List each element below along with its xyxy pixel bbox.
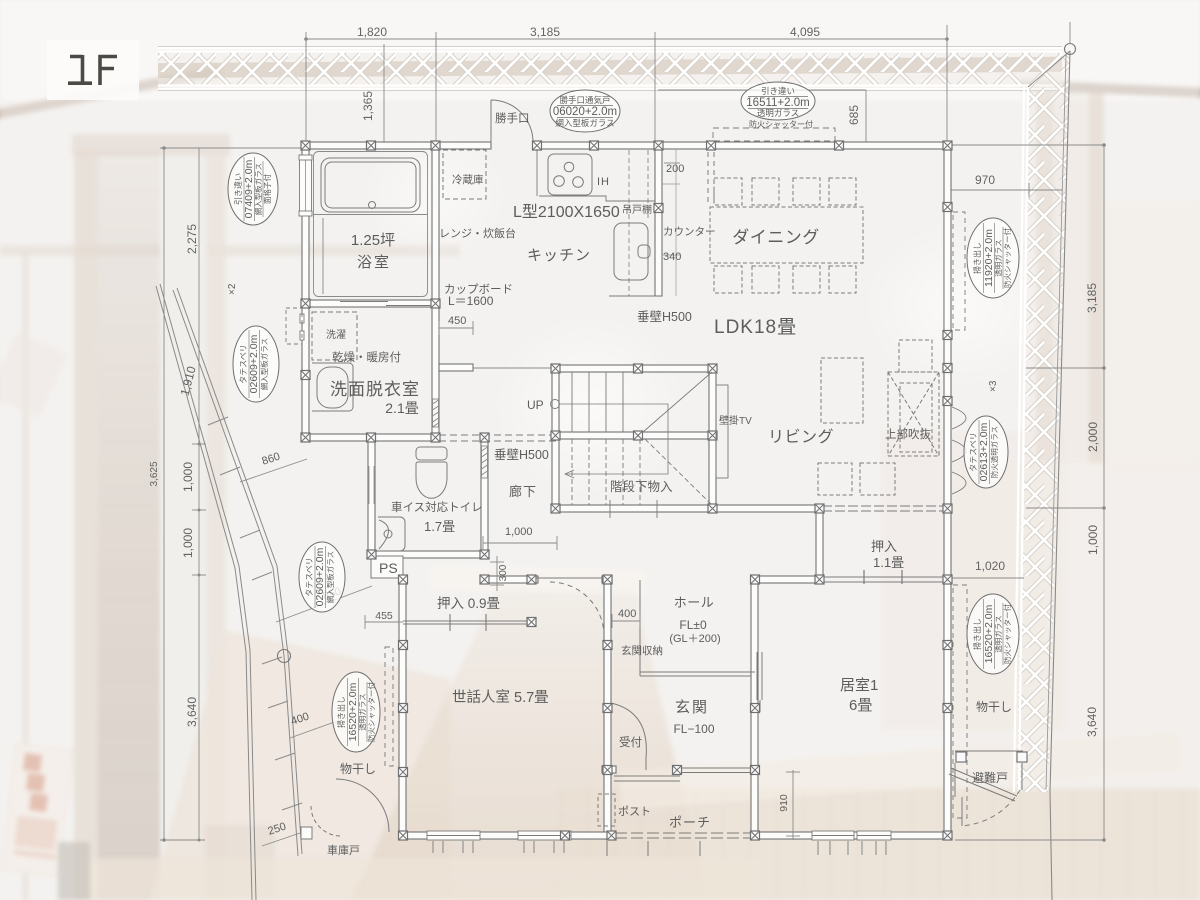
svg-text:掃き出し: 掃き出し <box>336 696 346 728</box>
svg-text:乾燥・暖房付: 乾燥・暖房付 <box>332 351 401 364</box>
svg-text:押入 0.9畳: 押入 0.9畳 <box>437 596 500 611</box>
svg-text:860: 860 <box>260 451 281 468</box>
svg-text:物干し: 物干し <box>976 700 1012 714</box>
svg-text:2,000: 2,000 <box>1086 422 1100 452</box>
svg-text:世話人室 5.7畳: 世話人室 5.7畳 <box>452 689 549 706</box>
svg-text:3,185: 3,185 <box>530 25 560 39</box>
svg-text:垂壁H500: 垂壁H500 <box>637 309 692 324</box>
svg-text:FL−100: FL−100 <box>673 722 714 736</box>
svg-text:2.1畳: 2.1畳 <box>385 400 418 416</box>
svg-text:ダイニング: ダイニング <box>732 228 820 247</box>
svg-text:1,000: 1,000 <box>1086 525 1100 555</box>
svg-text:970: 970 <box>975 173 995 187</box>
svg-text:網入型板ガラス: 網入型板ガラス <box>325 551 335 603</box>
svg-text:1,000: 1,000 <box>505 526 533 538</box>
svg-text:455: 455 <box>375 610 393 622</box>
svg-text:ポーチ: ポーチ <box>669 815 711 830</box>
svg-text:防火シャッター付: 防火シャッター付 <box>366 682 376 742</box>
svg-text:ホール: ホール <box>674 595 715 610</box>
svg-text:面格子付: 面格子付 <box>262 174 272 204</box>
svg-text:×2: ×2 <box>227 283 238 295</box>
svg-text:LDK18畳: LDK18畳 <box>714 317 797 338</box>
svg-text:玄関: 玄関 <box>675 699 709 716</box>
svg-text:玄関収納: 玄関収納 <box>621 644 663 657</box>
svg-text:車イス対応トイレ: 車イス対応トイレ <box>391 500 483 514</box>
svg-text:引き違い: 引き違い <box>233 173 243 205</box>
svg-text:上部吹抜: 上部吹抜 <box>885 427 931 441</box>
svg-text:2,275: 2,275 <box>185 224 199 254</box>
svg-text:400: 400 <box>618 608 636 620</box>
svg-text:IH: IH <box>597 176 610 188</box>
svg-text:網入型板ガラス: 網入型板ガラス <box>259 338 269 390</box>
svg-text:引き違い: 引き違い <box>761 86 795 96</box>
svg-text:4,095: 4,095 <box>790 25 820 39</box>
svg-text:冷蔵庫: 冷蔵庫 <box>452 173 484 186</box>
svg-text:防火透明ガラス: 防火透明ガラス <box>989 426 999 478</box>
svg-text:防火シャッター付: 防火シャッター付 <box>749 119 813 129</box>
svg-text:押入: 押入 <box>871 539 897 554</box>
svg-text:避難戸: 避難戸 <box>972 770 1008 785</box>
svg-text:レンジ・炊飯台: レンジ・炊飯台 <box>439 226 516 240</box>
svg-text:(GL＋200): (GL＋200) <box>669 633 720 645</box>
svg-text:キッチン: キッチン <box>527 247 591 264</box>
svg-text:1,000: 1,000 <box>181 528 195 558</box>
svg-text:02609+2.0m: 02609+2.0m <box>248 334 260 393</box>
svg-text:吊戸棚: 吊戸棚 <box>622 203 652 216</box>
svg-text:1.7畳: 1.7畳 <box>424 519 455 534</box>
svg-text:910: 910 <box>778 794 790 812</box>
svg-text:タテスベリ: タテスベリ <box>969 432 978 471</box>
svg-text:02609+2.0m: 02609+2.0m <box>314 547 326 606</box>
svg-text:受付: 受付 <box>619 736 642 749</box>
svg-text:壁掛TV: 壁掛TV <box>719 414 752 427</box>
svg-text:250: 250 <box>266 821 287 838</box>
svg-text:×3: ×3 <box>988 380 999 392</box>
svg-text:3,625: 3,625 <box>149 461 160 486</box>
svg-text:UP: UP <box>527 398 544 412</box>
svg-text:掃き出し: 掃き出し <box>972 618 982 650</box>
svg-text:垂壁H500: 垂壁H500 <box>494 447 549 462</box>
svg-text:685: 685 <box>847 105 861 125</box>
svg-text:物干し: 物干し <box>340 762 376 776</box>
svg-text:勝手口通気戸: 勝手口通気戸 <box>559 95 610 105</box>
svg-text:リビング: リビング <box>768 428 834 446</box>
svg-text:L型2100X1650: L型2100X1650 <box>513 203 620 221</box>
svg-text:3,640: 3,640 <box>185 697 199 727</box>
svg-text:300: 300 <box>498 564 509 581</box>
svg-text:防火シャッター付: 防火シャッター付 <box>1002 604 1012 664</box>
svg-text:浴室: 浴室 <box>357 254 391 271</box>
svg-text:掃き出し: 掃き出し <box>972 242 982 274</box>
svg-text:1,365: 1,365 <box>361 91 375 121</box>
svg-text:1,000: 1,000 <box>181 462 195 492</box>
svg-text:居室1: 居室1 <box>840 677 878 694</box>
svg-text:透明ガラス: 透明ガラス <box>757 108 799 118</box>
svg-text:タテスベリ: タテスベリ <box>239 344 248 383</box>
svg-text:1.25坪: 1.25坪 <box>351 232 395 249</box>
svg-text:3,185: 3,185 <box>1085 283 1099 313</box>
svg-text:洗濯: 洗濯 <box>326 329 346 341</box>
svg-text:防火シャッター付: 防火シャッター付 <box>1002 228 1012 288</box>
svg-text:1,820: 1,820 <box>357 25 387 39</box>
svg-text:3,640: 3,640 <box>1085 707 1099 737</box>
svg-text:勝手口: 勝手口 <box>495 111 530 125</box>
svg-text:06020+2.0m: 06020+2.0m <box>553 106 617 118</box>
svg-text:1,910: 1,910 <box>177 364 198 397</box>
svg-text:カウンター: カウンター <box>663 226 716 238</box>
svg-text:200: 200 <box>666 163 684 175</box>
svg-text:450: 450 <box>448 315 466 327</box>
svg-text:階段下物入: 階段下物入 <box>610 479 673 494</box>
svg-text:FL±0: FL±0 <box>679 618 707 632</box>
svg-text:ポスト: ポスト <box>618 805 651 818</box>
svg-text:タテスベリ: タテスベリ <box>305 557 314 596</box>
svg-text:洗面脱衣室: 洗面脱衣室 <box>330 380 420 399</box>
svg-text:400: 400 <box>289 711 310 728</box>
svg-text:02613+2.0m: 02613+2.0m <box>978 422 990 481</box>
svg-text:網入型板ガラス: 網入型板ガラス <box>555 118 614 128</box>
svg-text:1,020: 1,020 <box>975 559 1005 573</box>
svg-text:廊下: 廊下 <box>509 484 537 499</box>
svg-text:1.1畳: 1.1畳 <box>873 555 904 570</box>
svg-text:車庫戸: 車庫戸 <box>327 843 360 857</box>
svg-text:340: 340 <box>663 251 681 263</box>
svg-text:6畳: 6畳 <box>849 697 872 714</box>
svg-text:L＝1600: L＝1600 <box>448 294 494 308</box>
svg-text:PS: PS <box>379 560 398 576</box>
